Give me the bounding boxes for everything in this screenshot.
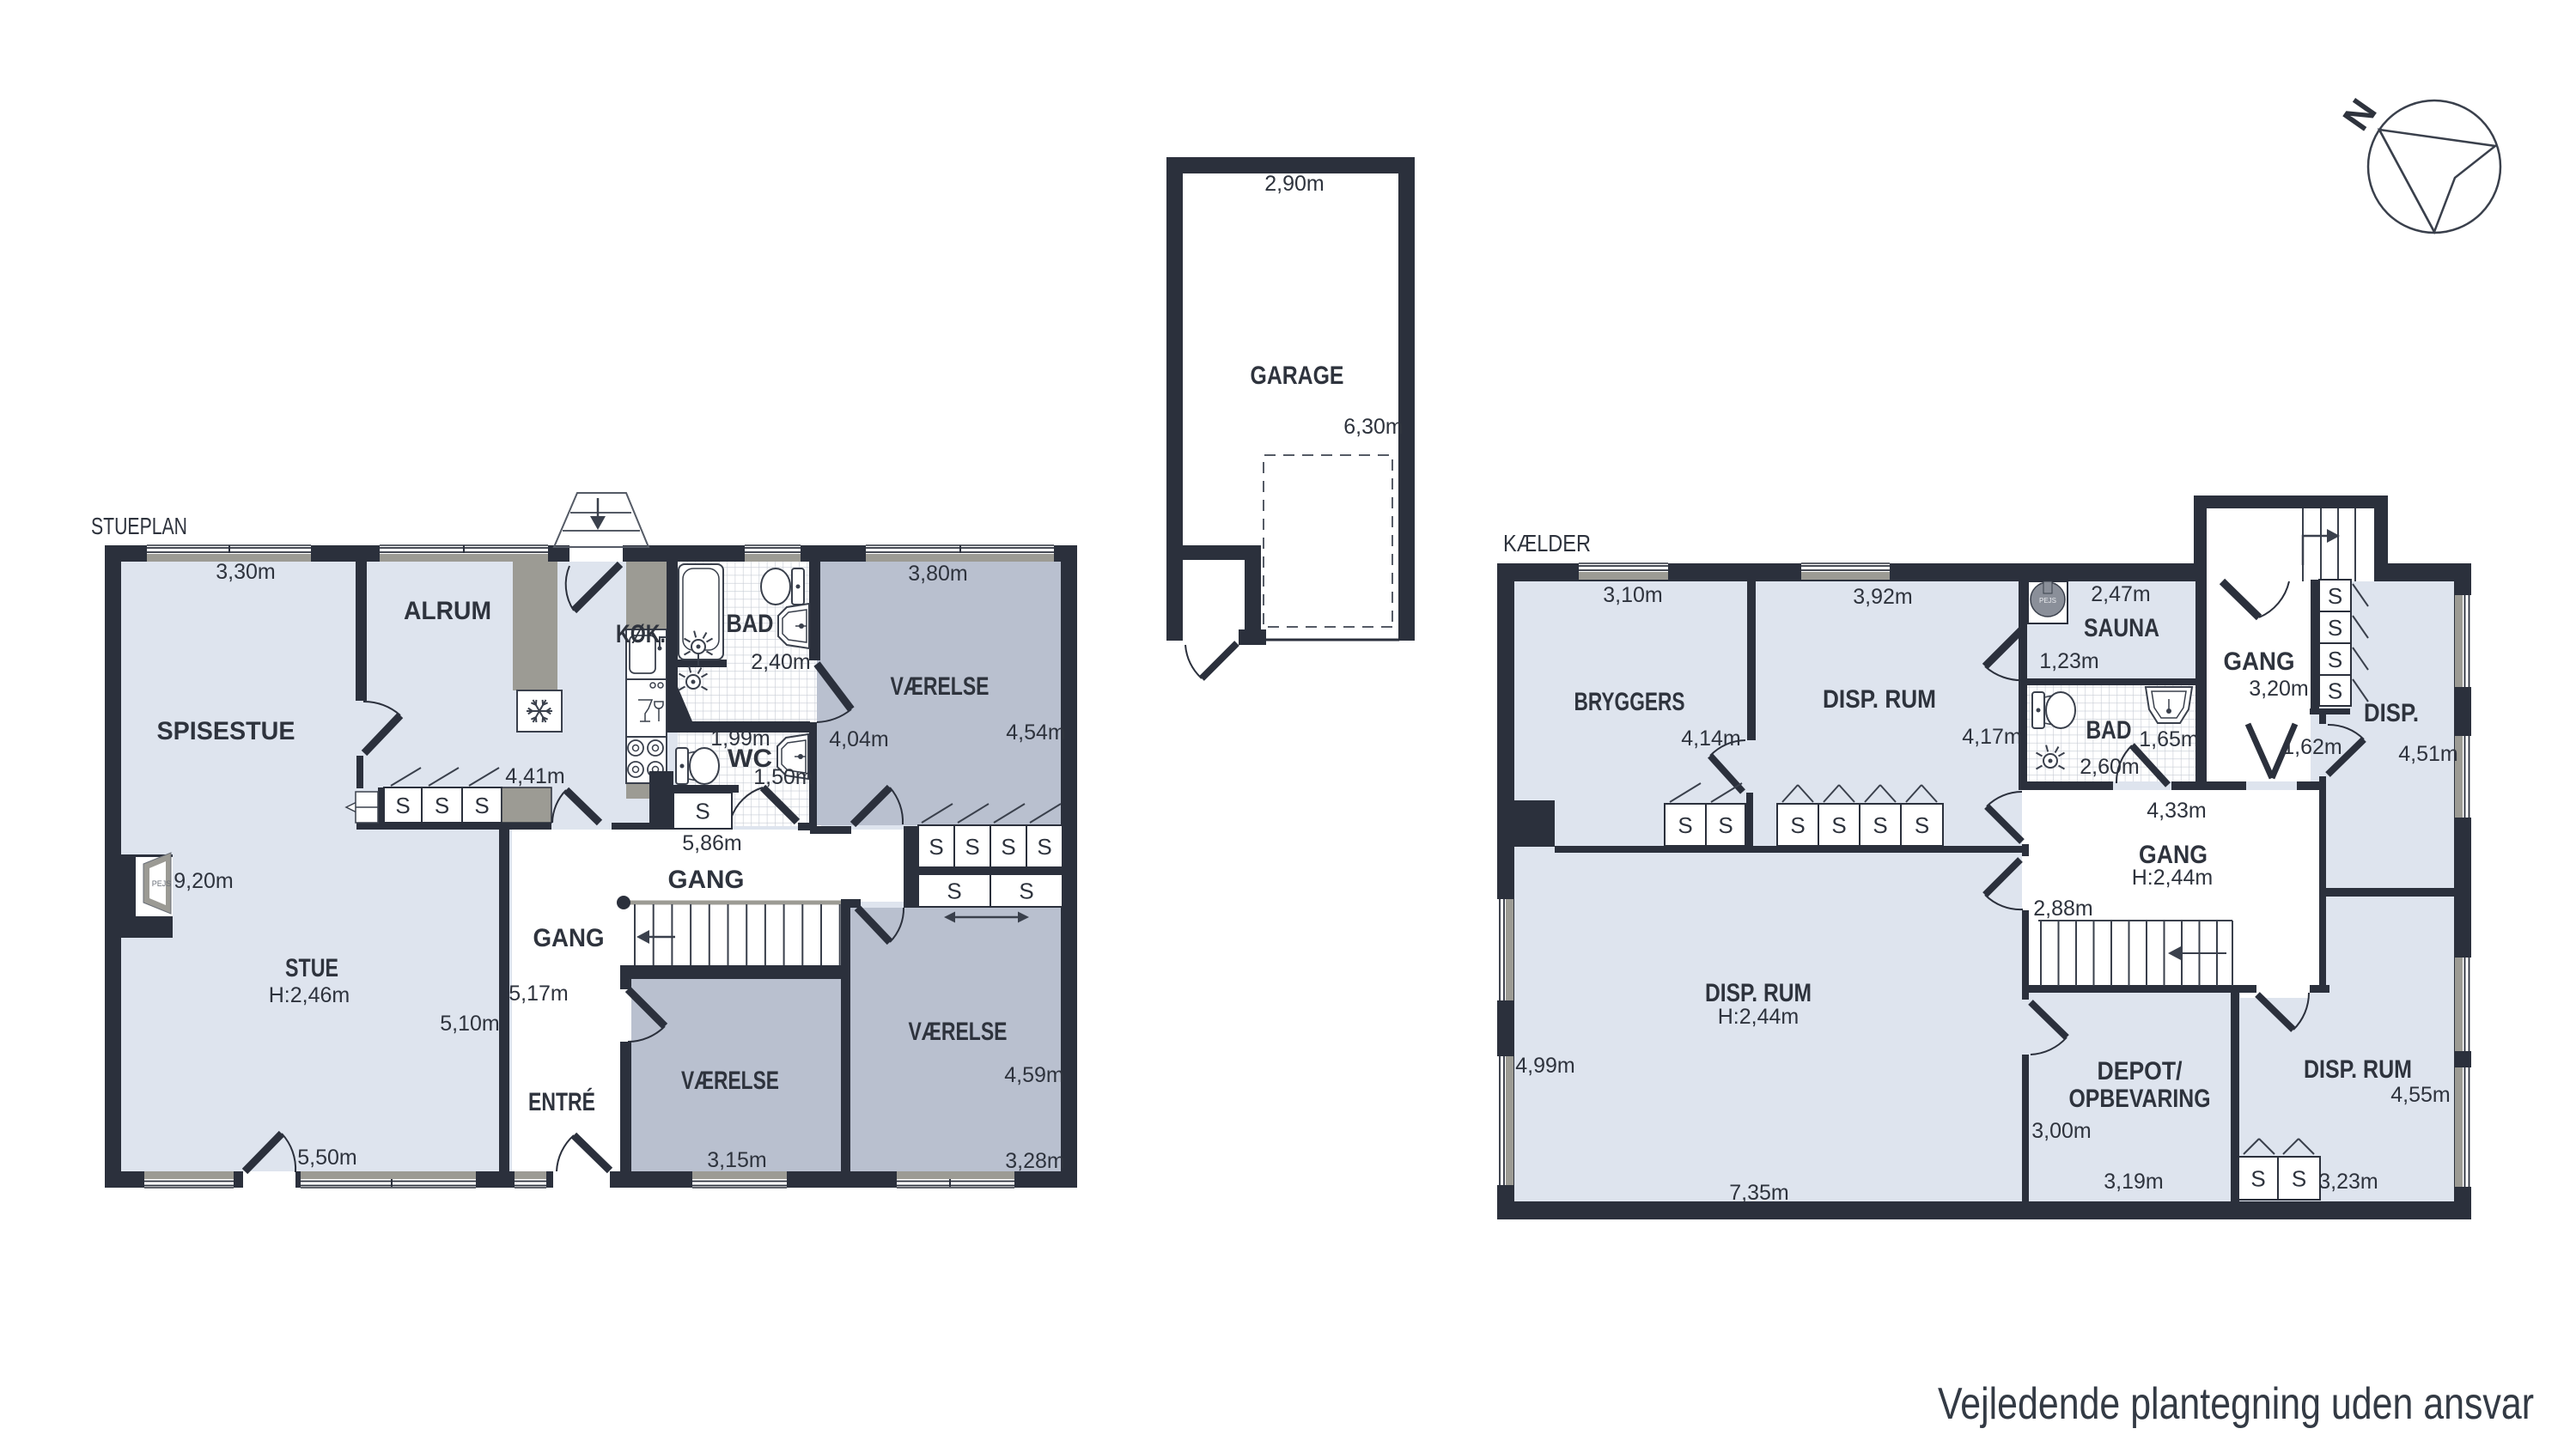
svg-text:BAD: BAD bbox=[727, 610, 774, 638]
svg-text:VÆRELSE: VÆRELSE bbox=[909, 1018, 1008, 1046]
svg-text:4,54m: 4,54m bbox=[1006, 720, 1065, 745]
svg-text:3,28m: 3,28m bbox=[1005, 1149, 1064, 1173]
svg-text:SPISESTUE: SPISESTUE bbox=[157, 717, 295, 745]
svg-text:VÆRELSE: VÆRELSE bbox=[681, 1067, 779, 1095]
svg-text:SAUNA: SAUNA bbox=[2084, 614, 2159, 642]
svg-text:DISP.: DISP. bbox=[2364, 699, 2419, 727]
svg-text:KØK.: KØK. bbox=[616, 620, 666, 648]
svg-text:1,50m: 1,50m bbox=[753, 765, 813, 789]
svg-text:5,10m: 5,10m bbox=[440, 1012, 499, 1036]
svg-text:4,99m: 4,99m bbox=[1515, 1054, 1574, 1078]
svg-text:4,17m: 4,17m bbox=[1962, 725, 2021, 749]
svg-text:DISP. RUM: DISP. RUM bbox=[1823, 685, 1936, 714]
svg-text:3,92m: 3,92m bbox=[1853, 585, 1912, 609]
svg-text:7,35m: 7,35m bbox=[1729, 1181, 1788, 1205]
svg-text:S: S bbox=[435, 793, 449, 818]
svg-text:PEJS: PEJS bbox=[2039, 597, 2056, 605]
svg-text:4,33m: 4,33m bbox=[2147, 799, 2206, 823]
svg-text:5,50m: 5,50m bbox=[297, 1146, 356, 1170]
svg-text:9,20m: 9,20m bbox=[174, 869, 233, 893]
svg-text:S: S bbox=[947, 878, 961, 903]
svg-text:4,51m: 4,51m bbox=[2398, 742, 2457, 766]
svg-text:S: S bbox=[695, 798, 709, 824]
svg-text:S: S bbox=[965, 834, 979, 860]
svg-text:S: S bbox=[2328, 615, 2342, 641]
svg-text:VÆRELSE: VÆRELSE bbox=[891, 672, 990, 701]
svg-text:5,17m: 5,17m bbox=[509, 982, 568, 1006]
svg-text:1,62m: 1,62m bbox=[2282, 735, 2342, 759]
svg-text:S: S bbox=[1831, 812, 1846, 838]
svg-text:S: S bbox=[2292, 1165, 2306, 1191]
svg-text:DEPOT/: DEPOT/ bbox=[2098, 1057, 2183, 1085]
svg-text:2,90m: 2,90m bbox=[1264, 172, 1324, 196]
svg-text:S: S bbox=[1915, 812, 1929, 838]
svg-text:GANG: GANG bbox=[533, 924, 605, 952]
svg-text:S: S bbox=[474, 793, 489, 818]
svg-text:DISP. RUM: DISP. RUM bbox=[2304, 1055, 2412, 1084]
svg-text:GARAGE: GARAGE bbox=[1251, 362, 1344, 390]
svg-text:ENTRÉ: ENTRÉ bbox=[528, 1087, 595, 1116]
svg-text:2,47m: 2,47m bbox=[2091, 582, 2150, 606]
svg-text:PEJS: PEJS bbox=[152, 879, 172, 888]
svg-text:S: S bbox=[1790, 812, 1805, 838]
svg-text:S: S bbox=[1001, 834, 1015, 860]
svg-text:H:2,44m: H:2,44m bbox=[2132, 866, 2213, 890]
svg-text:3,10m: 3,10m bbox=[1603, 583, 1662, 607]
svg-text:H:2,44m: H:2,44m bbox=[1718, 1005, 1799, 1029]
svg-text:3,00m: 3,00m bbox=[2031, 1119, 2091, 1143]
svg-text:S: S bbox=[1873, 812, 1887, 838]
svg-text:S: S bbox=[395, 793, 410, 818]
svg-text:S: S bbox=[2328, 647, 2342, 672]
svg-text:4,59m: 4,59m bbox=[1004, 1063, 1063, 1087]
svg-text:2,40m: 2,40m bbox=[751, 650, 810, 674]
svg-text:1,65m: 1,65m bbox=[2139, 727, 2198, 751]
svg-text:DISP. RUM: DISP. RUM bbox=[1705, 979, 1812, 1007]
svg-text:BRYGGERS: BRYGGERS bbox=[1574, 688, 1685, 716]
svg-text:S: S bbox=[1019, 878, 1033, 903]
svg-text:4,04m: 4,04m bbox=[829, 727, 888, 751]
svg-text:2,60m: 2,60m bbox=[2080, 755, 2139, 779]
svg-text:GANG: GANG bbox=[2224, 648, 2295, 676]
svg-text:H:2,46m: H:2,46m bbox=[269, 983, 350, 1007]
svg-text:S: S bbox=[2328, 678, 2342, 703]
svg-text:3,30m: 3,30m bbox=[216, 560, 275, 584]
svg-text:4,55m: 4,55m bbox=[2390, 1083, 2450, 1107]
svg-text:S: S bbox=[1037, 834, 1051, 860]
svg-text:S: S bbox=[2328, 583, 2342, 609]
svg-text:4,14m: 4,14m bbox=[1681, 727, 1740, 751]
svg-text:BAD: BAD bbox=[2086, 716, 2132, 745]
svg-text:S: S bbox=[2250, 1165, 2265, 1191]
svg-text:2,88m: 2,88m bbox=[2033, 897, 2092, 921]
svg-text:KÆLDER: KÆLDER bbox=[1503, 530, 1591, 556]
svg-text:ALRUM: ALRUM bbox=[404, 597, 491, 625]
svg-text:3,23m: 3,23m bbox=[2318, 1170, 2378, 1194]
svg-text:GANG: GANG bbox=[668, 866, 745, 894]
svg-text:OPBEVARING: OPBEVARING bbox=[2069, 1085, 2211, 1113]
svg-text:6,30m: 6,30m bbox=[1343, 415, 1403, 439]
svg-text:S: S bbox=[1678, 812, 1692, 838]
svg-text:S: S bbox=[1718, 812, 1733, 838]
svg-text:4,41m: 4,41m bbox=[505, 764, 564, 788]
svg-text:STUEPLAN: STUEPLAN bbox=[91, 513, 187, 539]
svg-text:S: S bbox=[929, 834, 943, 860]
svg-text:3,19m: 3,19m bbox=[2104, 1170, 2163, 1194]
svg-text:Vejledende plantegning uden an: Vejledende plantegning uden ansvar bbox=[1938, 1379, 2534, 1429]
svg-text:5,86m: 5,86m bbox=[682, 831, 741, 855]
svg-text:3,15m: 3,15m bbox=[707, 1148, 766, 1172]
svg-text:1,23m: 1,23m bbox=[2039, 649, 2098, 673]
svg-text:STUE: STUE bbox=[285, 954, 338, 982]
svg-text:3,20m: 3,20m bbox=[2249, 677, 2308, 701]
svg-text:3,80m: 3,80m bbox=[908, 562, 967, 586]
